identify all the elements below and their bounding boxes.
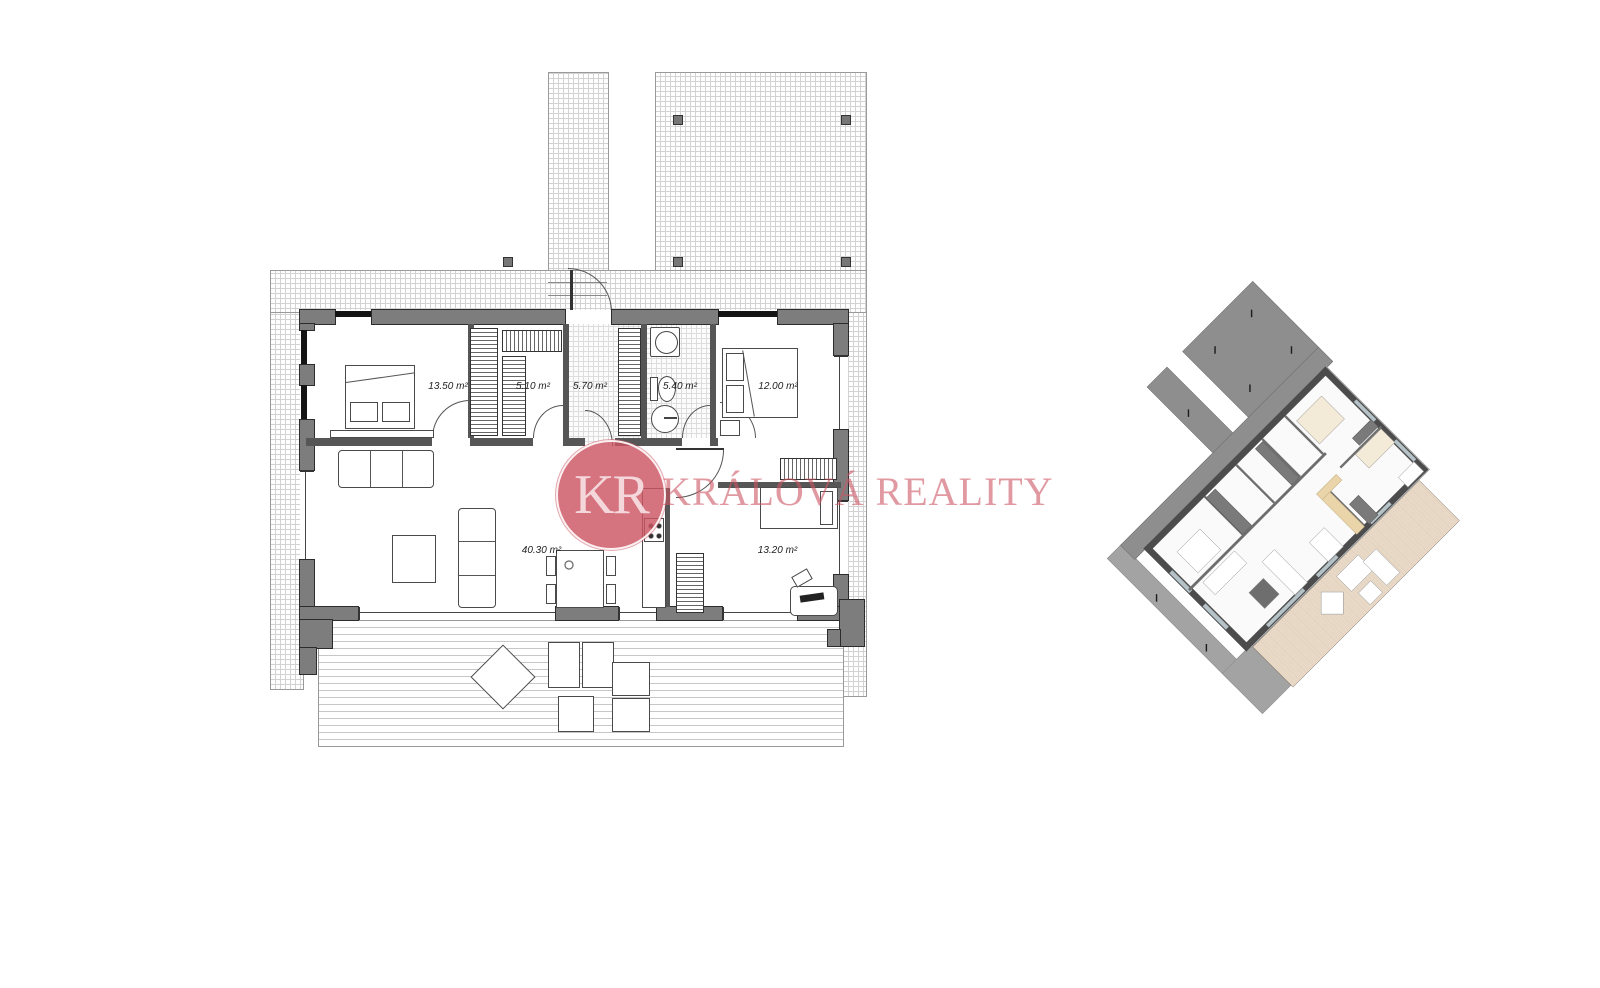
wardrobe bbox=[676, 553, 704, 613]
sofa bbox=[338, 450, 434, 488]
wardrobe bbox=[502, 330, 562, 352]
sink bbox=[651, 405, 679, 433]
watermark-monogram: KR bbox=[574, 467, 648, 523]
iso-lounge-chair bbox=[1321, 592, 1344, 615]
room-area-label: 5.70 m² bbox=[560, 381, 620, 392]
wall-interior bbox=[563, 438, 585, 446]
room-area-label: 12.00 m² bbox=[743, 381, 813, 392]
wall-top bbox=[778, 310, 848, 324]
dining-chair bbox=[606, 584, 616, 604]
outdoor-table bbox=[558, 696, 594, 732]
wall-top bbox=[372, 310, 565, 324]
dining-chair bbox=[606, 556, 616, 576]
sofa bbox=[458, 508, 496, 608]
pergola-post bbox=[674, 116, 682, 124]
window-south-kitchen bbox=[618, 607, 661, 620]
sink-tap bbox=[664, 417, 677, 419]
corner-pier-sw bbox=[300, 620, 332, 648]
bed-pillow bbox=[350, 402, 378, 422]
bed-pillow bbox=[726, 353, 744, 381]
room-area-label: 40.30 m² bbox=[504, 545, 579, 556]
wall-interior bbox=[470, 438, 533, 446]
desk bbox=[790, 586, 838, 616]
iso-post bbox=[1251, 310, 1252, 318]
isometric-rotated-plan bbox=[1036, 261, 1508, 733]
iso-post bbox=[1291, 346, 1292, 354]
pergola-post bbox=[842, 258, 850, 266]
wall-left bbox=[300, 365, 314, 385]
wall-bottom bbox=[300, 607, 358, 620]
iso-post bbox=[1249, 384, 1250, 392]
bed-bench bbox=[330, 430, 434, 438]
isometric-3d-view bbox=[1060, 250, 1500, 720]
iso-post bbox=[1214, 346, 1215, 354]
window-frame-left bbox=[301, 330, 307, 365]
room-area-label: 13.20 m² bbox=[740, 545, 815, 556]
wall-interior bbox=[306, 438, 432, 446]
watermark-brand-text: KRÁLOVÁ REALITY bbox=[662, 468, 1054, 515]
window-frame-left bbox=[301, 385, 307, 420]
room-area-label: 5.10 m² bbox=[503, 381, 563, 392]
paving-northeast bbox=[655, 72, 867, 272]
sun-lounger bbox=[612, 698, 650, 732]
dining-chair bbox=[546, 556, 556, 576]
door-leaf-study bbox=[676, 448, 724, 450]
iso-post bbox=[1188, 409, 1189, 417]
wall-interior bbox=[710, 324, 716, 438]
floor-plan-sheet: 13.50 m² 5.10 m² 5.70 m² 5.40 m² 12.00 m… bbox=[0, 0, 1600, 988]
dining-chair bbox=[546, 584, 556, 604]
corner-pier-se bbox=[840, 600, 864, 646]
room-area-label: 5.40 m² bbox=[650, 381, 710, 392]
bed-pillow bbox=[382, 402, 410, 422]
pergola-post bbox=[674, 258, 682, 266]
pergola-post bbox=[504, 258, 512, 266]
entry-door-leaf bbox=[570, 270, 573, 312]
corner-pier-se-step bbox=[828, 630, 840, 646]
wall-interior bbox=[710, 438, 718, 446]
iso-post bbox=[1156, 594, 1157, 602]
sun-lounger bbox=[548, 642, 580, 688]
wall-interior bbox=[641, 324, 647, 438]
pergola-post bbox=[842, 116, 850, 124]
sun-lounger bbox=[612, 662, 650, 696]
paving-west-band bbox=[270, 312, 304, 690]
wall-top bbox=[300, 310, 335, 324]
coffee-table bbox=[392, 535, 436, 583]
iso-post bbox=[1206, 644, 1207, 652]
watermark-logo-circle: KR bbox=[556, 440, 666, 550]
window-frame-top bbox=[718, 311, 778, 317]
bed-pillow bbox=[726, 385, 744, 413]
corner-pier-sw-step bbox=[300, 648, 316, 674]
dining-table bbox=[556, 550, 604, 608]
window-right bbox=[834, 355, 848, 434]
wardrobe bbox=[502, 356, 526, 436]
window-left bbox=[300, 470, 314, 564]
wall-top bbox=[612, 310, 718, 324]
wardrobe bbox=[618, 328, 641, 436]
window-frame-top bbox=[335, 311, 372, 317]
nightstand bbox=[720, 420, 740, 436]
room-area-label: 13.50 m² bbox=[413, 381, 483, 392]
sun-lounger bbox=[582, 642, 614, 688]
wall-right bbox=[834, 324, 848, 355]
window-south-living bbox=[358, 607, 560, 620]
wall-bottom bbox=[556, 607, 618, 620]
washing-machine-drum bbox=[655, 331, 678, 354]
